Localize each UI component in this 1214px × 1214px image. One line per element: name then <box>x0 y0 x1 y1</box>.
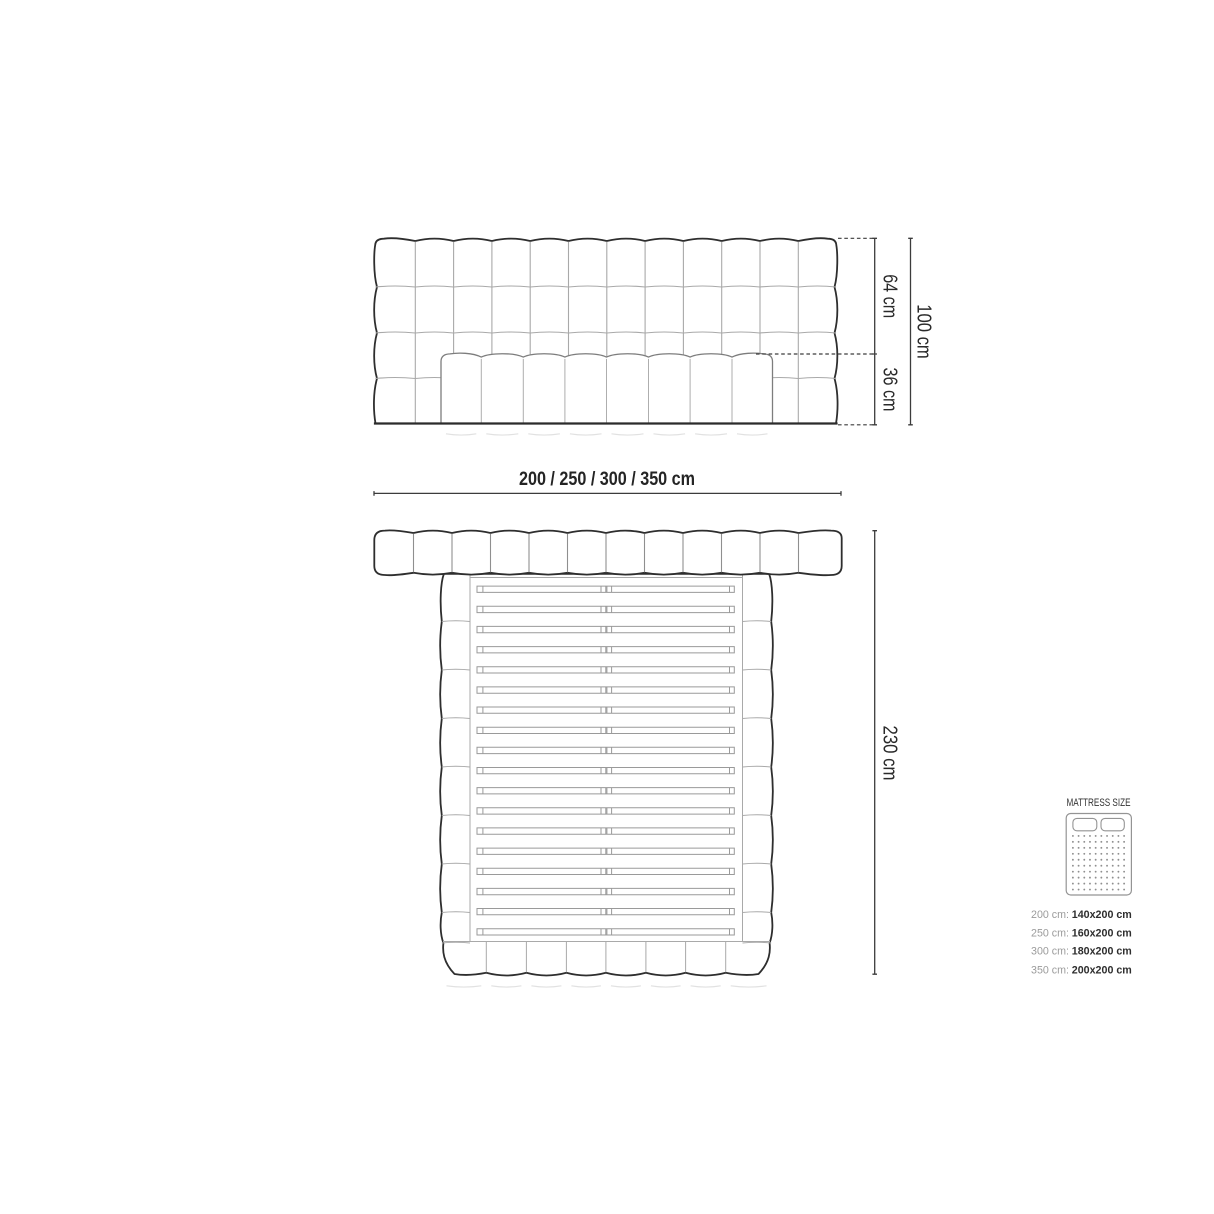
svg-text:64 cm: 64 cm <box>878 274 900 318</box>
svg-text:100 cm: 100 cm <box>913 304 935 359</box>
svg-text:160x200 cm: 160x200 cm <box>1072 927 1132 939</box>
svg-text:180x200 cm: 180x200 cm <box>1072 945 1132 957</box>
svg-text:MATTRESS SIZE: MATTRESS SIZE <box>1067 797 1131 809</box>
svg-text:200 / 250 / 300 / 350 cm: 200 / 250 / 300 / 350 cm <box>519 468 695 490</box>
svg-text:350 cm:: 350 cm: <box>1031 964 1069 976</box>
svg-text:300 cm:: 300 cm: <box>1031 945 1069 957</box>
svg-text:36 cm: 36 cm <box>878 368 900 412</box>
svg-text:250 cm:: 250 cm: <box>1031 927 1069 939</box>
svg-text:230 cm: 230 cm <box>878 726 900 781</box>
svg-text:200 cm:: 200 cm: <box>1031 909 1069 921</box>
svg-text:140x200 cm: 140x200 cm <box>1072 909 1132 921</box>
svg-text:200x200 cm: 200x200 cm <box>1072 964 1132 976</box>
